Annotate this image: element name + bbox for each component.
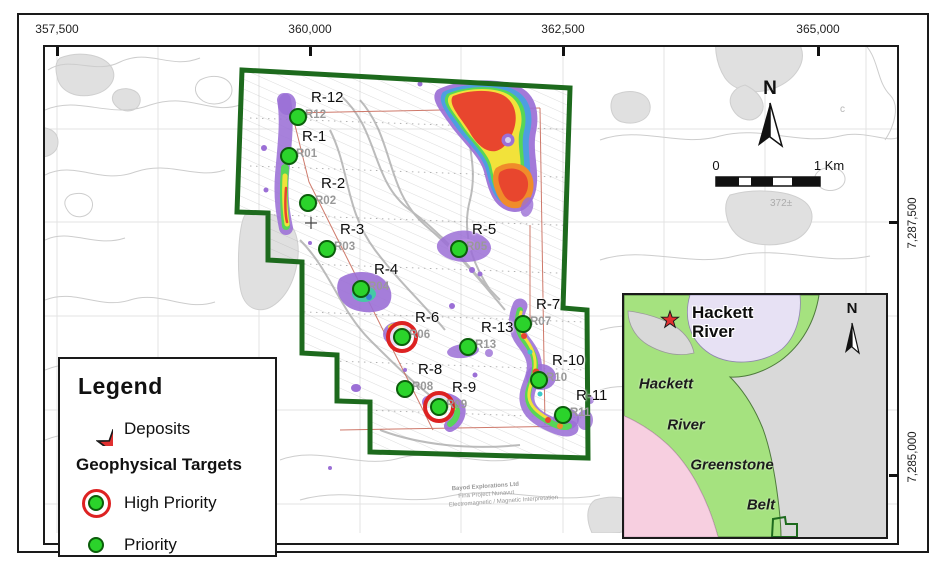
target-marker-icon [280, 147, 298, 165]
elevation-label: 372± [770, 198, 793, 209]
target-code: R06 [409, 329, 430, 341]
map-figure: { "map": { "top_axis": {"labels": ["357,… [0, 0, 950, 533]
target-code: R02 [315, 195, 336, 207]
target-code: R11 [570, 407, 590, 419]
legend-item-high-priority: High Priority [76, 485, 261, 521]
high-priority-icon [76, 489, 116, 518]
target-label: R-6 [415, 309, 439, 326]
target-label: R-3 [340, 221, 364, 238]
target-marker-icon [459, 338, 477, 356]
target-code: R04 [368, 281, 389, 293]
target-marker-icon [318, 240, 336, 258]
x-axis-label: 362,500 [541, 22, 584, 36]
legend-section-title: Geophysical Targets [76, 455, 261, 475]
target-code: R07 [530, 316, 551, 328]
target-label: R-10 [552, 352, 585, 369]
north-label: N [763, 78, 777, 100]
target-marker-icon [450, 240, 468, 258]
target-code: R03 [334, 241, 355, 253]
y-axis-label: 7,285,000 [907, 431, 919, 482]
target-marker-icon [430, 398, 448, 416]
target-code: R08 [412, 381, 433, 393]
x-axis-tick [309, 47, 312, 56]
inset-band-label: Greenstone [690, 457, 773, 474]
scale-bar [716, 177, 820, 186]
target-marker-icon [352, 280, 370, 298]
priority-icon [76, 537, 116, 553]
legend-title: Legend [78, 373, 261, 400]
x-axis-label: 365,000 [796, 22, 839, 36]
target-marker-icon [396, 380, 414, 398]
inset-map: Hackett River Hackett River Greenstone B… [622, 293, 888, 539]
target-marker-icon [289, 108, 307, 126]
y-axis-tick [889, 474, 898, 477]
target-marker-icon [299, 194, 317, 212]
x-axis-tick [562, 47, 565, 56]
target-label: R-8 [418, 361, 442, 378]
inset-north-label: N [847, 300, 858, 317]
target-marker-icon [530, 371, 548, 389]
deposit-star-icon [76, 412, 116, 446]
target-label: R-2 [321, 175, 345, 192]
target-label: R-7 [536, 296, 560, 313]
target-label: R-9 [452, 379, 476, 396]
legend-item-deposits: Deposits [76, 410, 261, 448]
inset-band-label: Hackett [639, 376, 693, 393]
inset-band-label: Belt [747, 497, 775, 514]
target-code: R10 [546, 372, 567, 384]
legend-item-label: Deposits [124, 419, 190, 439]
target-code: R05 [466, 241, 487, 253]
y-axis-tick [889, 221, 898, 224]
x-axis-tick [817, 47, 820, 56]
y-axis-label: 7,287,500 [907, 197, 919, 248]
legend-panel: Legend Deposits Geophysical Targets High… [58, 357, 277, 557]
inset-title: Hackett River [692, 303, 753, 341]
legend-item-priority: Priority [76, 527, 261, 563]
x-axis-label: 357,500 [35, 22, 78, 36]
legend-item-label: Priority [124, 535, 177, 555]
target-code: R01 [296, 148, 317, 160]
target-label: R-13 [481, 319, 514, 336]
target-marker-icon [514, 315, 532, 333]
target-marker-icon [393, 328, 411, 346]
inset-band-label: River [667, 417, 705, 434]
x-axis-tick [56, 47, 59, 56]
x-axis-label: 360,000 [288, 22, 331, 36]
target-code: R13 [475, 339, 496, 351]
target-code: R12 [305, 109, 326, 121]
target-code: R09 [446, 399, 467, 411]
scalebar-zero-label: 0 [712, 158, 719, 173]
scalebar-km-label: 1 Km [814, 158, 844, 173]
target-label: R-4 [374, 261, 398, 278]
target-label: R-12 [311, 89, 344, 106]
target-label: R-5 [472, 221, 496, 238]
target-marker-icon [554, 406, 572, 424]
target-label: R-11 [576, 387, 607, 404]
legend-item-label: High Priority [124, 493, 217, 513]
contour-letter: c [840, 104, 845, 115]
target-label: R-1 [302, 128, 326, 145]
